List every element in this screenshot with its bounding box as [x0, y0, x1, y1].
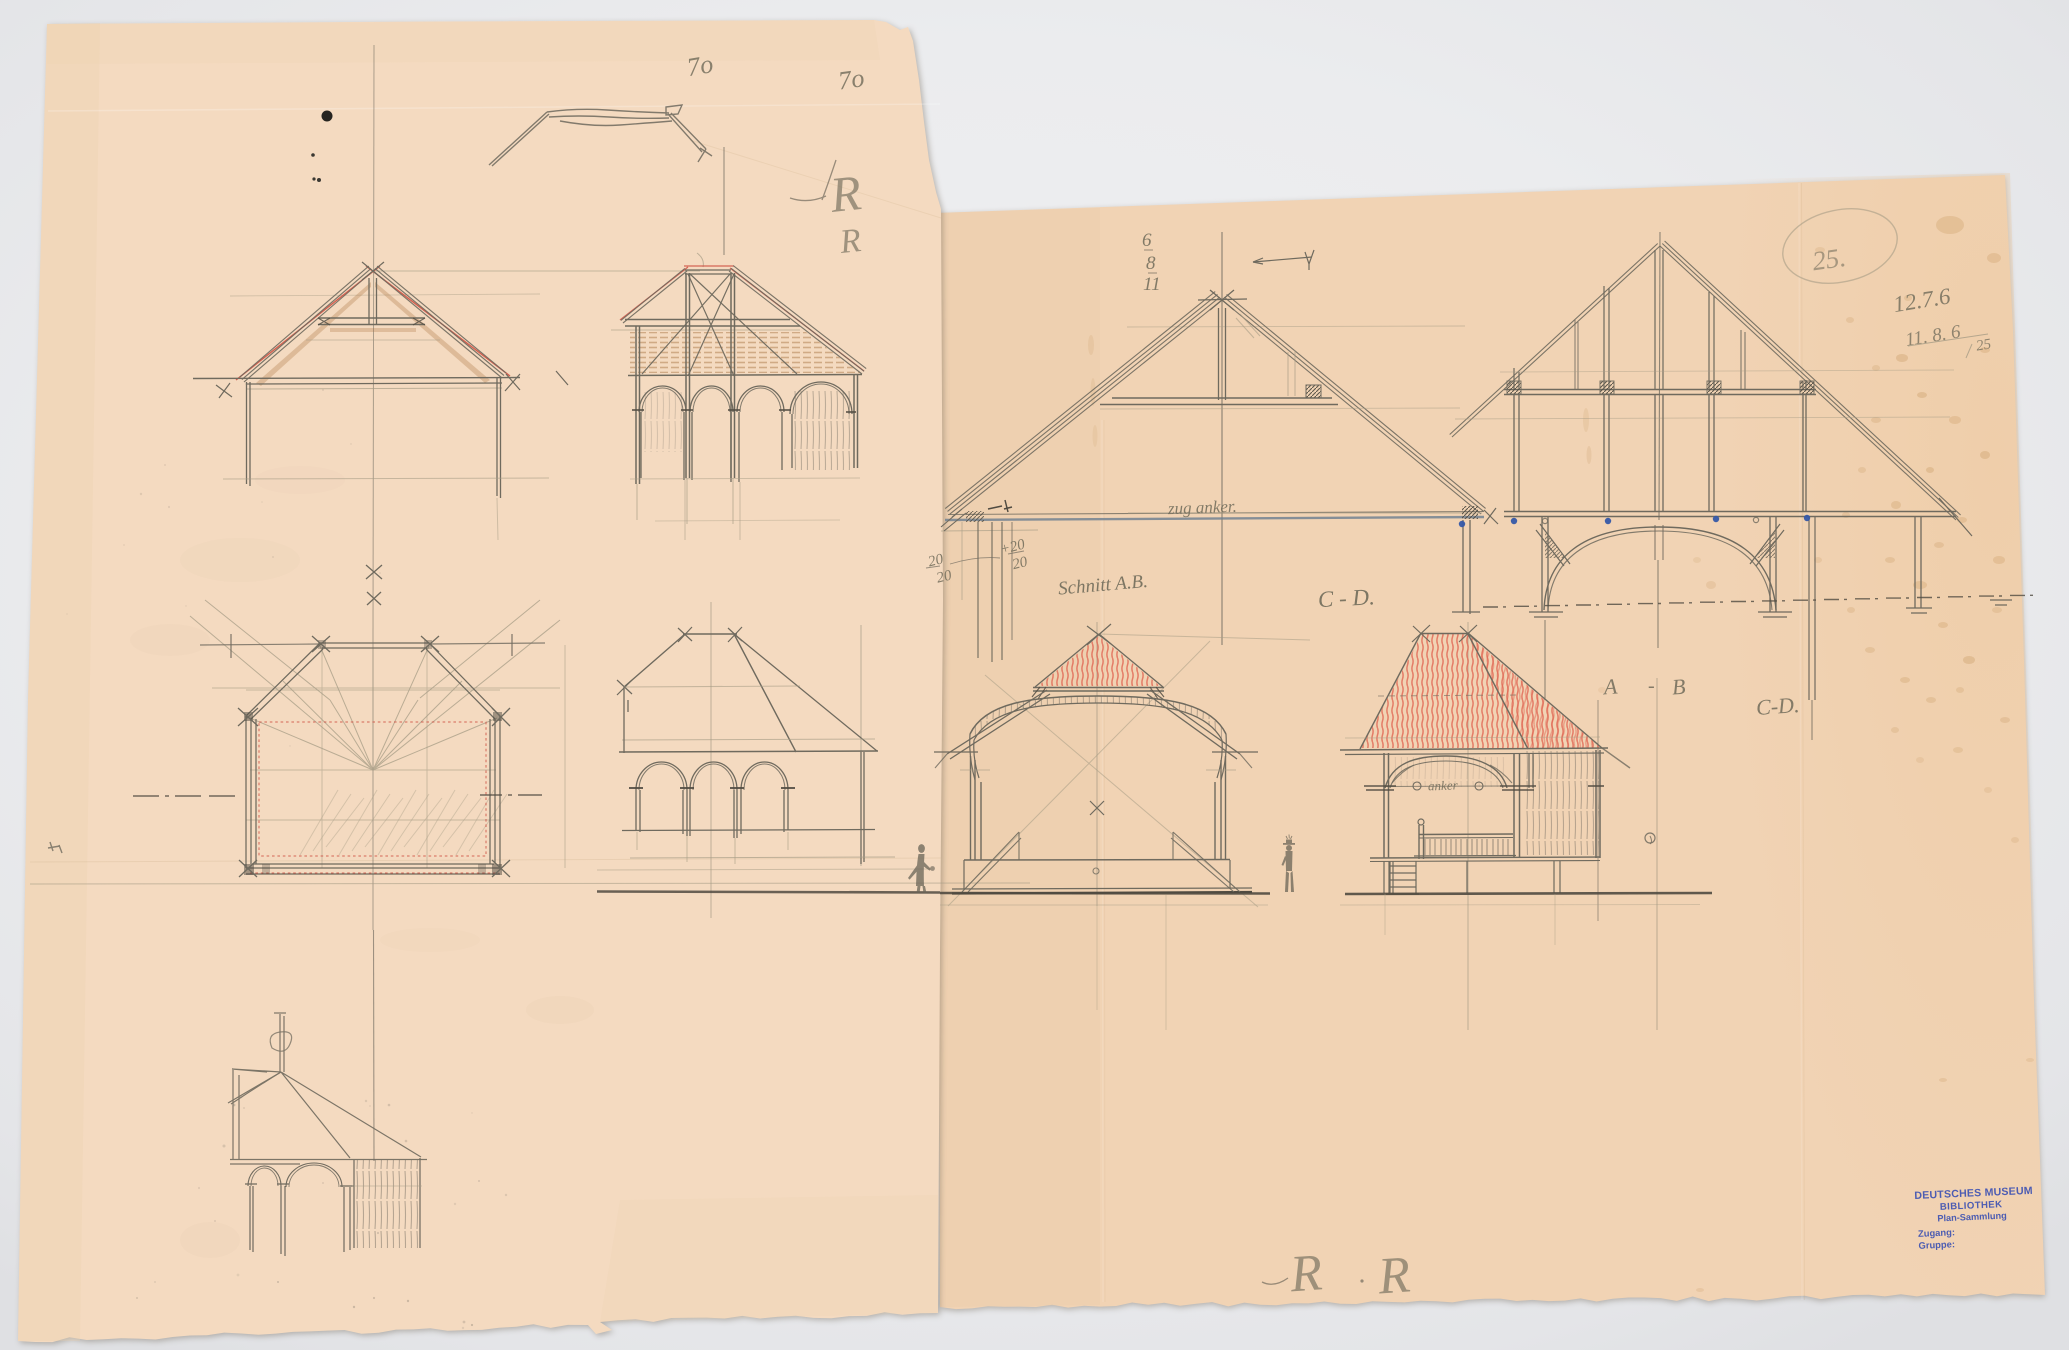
svg-text:R: R: [1287, 1244, 1324, 1303]
svg-text:Zugang:: Zugang:: [1918, 1226, 1955, 1239]
svg-text:11: 11: [1143, 274, 1161, 295]
svg-text:B: B: [1671, 674, 1686, 700]
svg-text:7o: 7o: [685, 49, 716, 82]
svg-text:25.: 25.: [1810, 242, 1848, 276]
svg-text:zug anker.: zug anker.: [1167, 497, 1238, 518]
svg-text:7o: 7o: [836, 63, 866, 95]
svg-text:Gruppe:: Gruppe:: [1918, 1238, 1955, 1251]
svg-text:C-D.: C-D.: [1755, 692, 1800, 720]
svg-text:C - D.: C - D.: [1317, 584, 1375, 612]
svg-text:R: R: [837, 222, 863, 261]
svg-text:anker: anker: [1428, 777, 1459, 793]
svg-text:25: 25: [1975, 336, 1993, 354]
svg-text:R: R: [1375, 1246, 1412, 1305]
svg-text:6: 6: [1142, 230, 1152, 251]
svg-text:8: 8: [1146, 253, 1156, 274]
svg-text:A: A: [1601, 673, 1619, 699]
svg-text:-: -: [1648, 675, 1655, 697]
